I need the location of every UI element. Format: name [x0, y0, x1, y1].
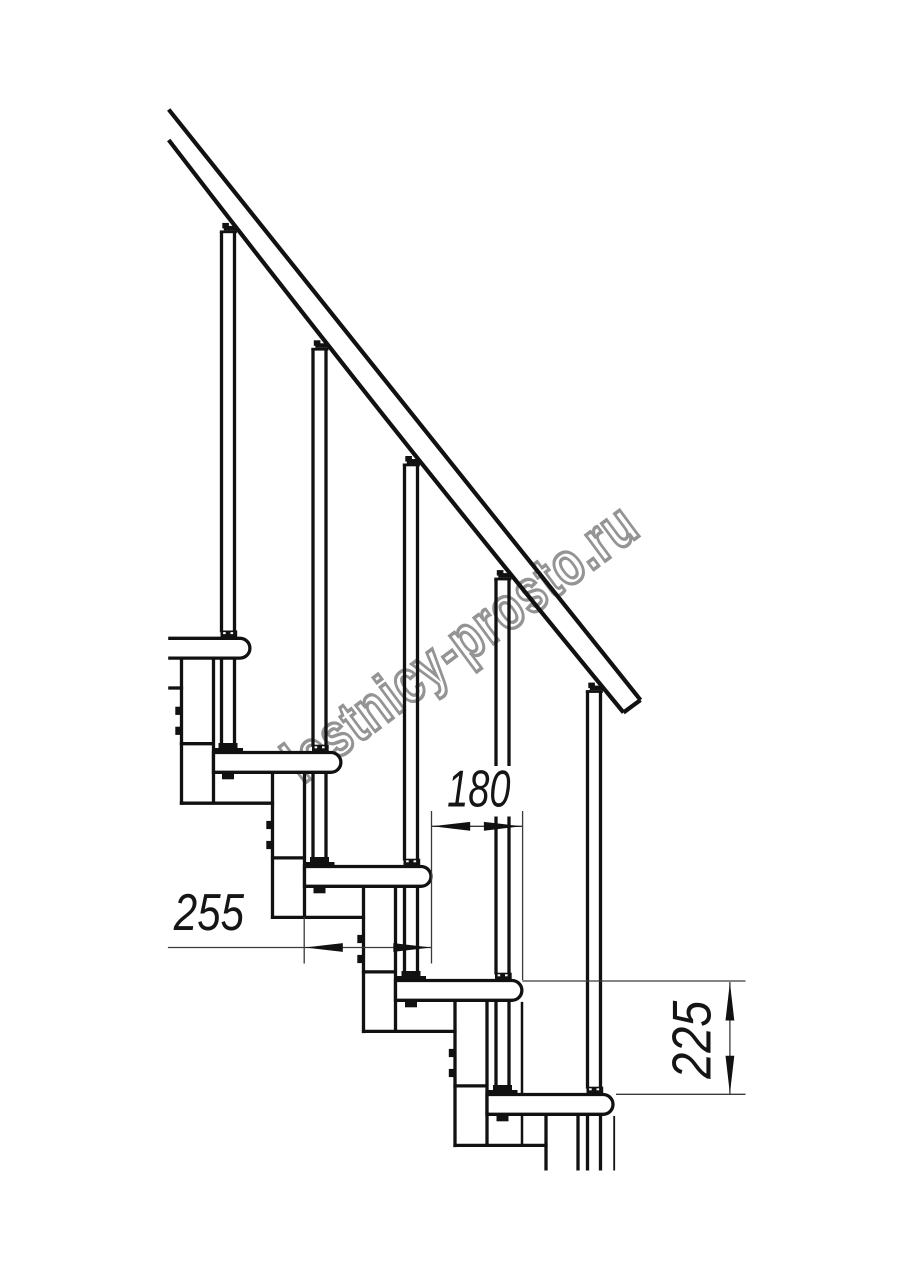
svg-text:255: 255: [173, 884, 245, 942]
svg-text:225: 225: [661, 1000, 722, 1079]
svg-text:180: 180: [447, 760, 510, 818]
